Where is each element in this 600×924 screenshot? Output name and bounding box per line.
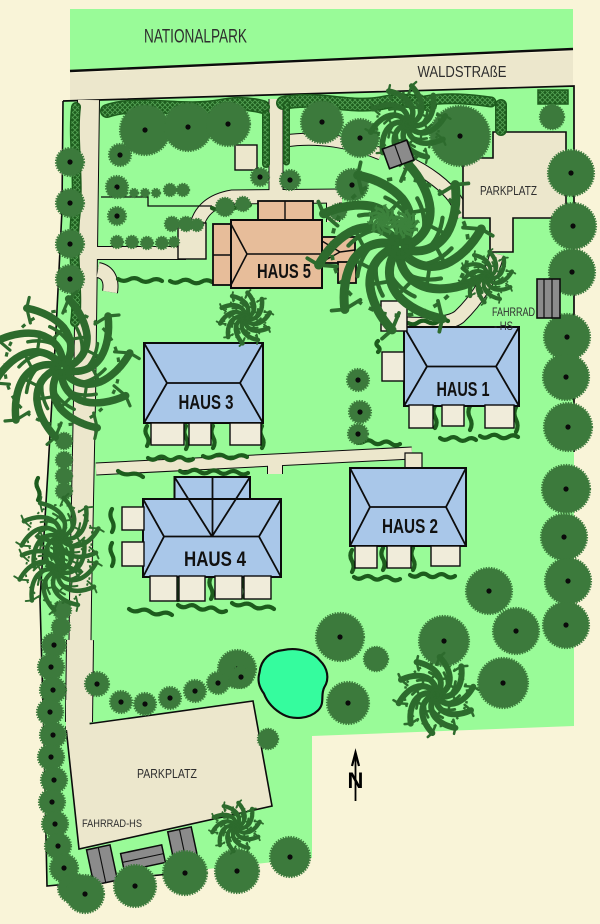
svg-text:- HS: - HS [494,319,513,333]
svg-text:FAHRRAD: FAHRRAD [492,305,535,319]
svg-text:HAUS 1: HAUS 1 [437,379,490,401]
svg-text:NATIONALPARK: NATIONALPARK [144,27,247,48]
svg-text:PARKPLATZ: PARKPLATZ [137,767,197,781]
svg-text:N: N [348,768,364,793]
svg-text:WALDSTRAßE: WALDSTRAßE [418,64,507,81]
svg-text:HAUS 2: HAUS 2 [382,516,438,538]
svg-text:HAUS 3: HAUS 3 [179,392,234,414]
svg-text:HAUS 5: HAUS 5 [257,261,311,283]
svg-text:PARKPLATZ: PARKPLATZ [480,183,537,198]
svg-text:HAUS 4: HAUS 4 [184,548,246,571]
svg-text:FAHRRAD-HS: FAHRRAD-HS [82,818,142,830]
